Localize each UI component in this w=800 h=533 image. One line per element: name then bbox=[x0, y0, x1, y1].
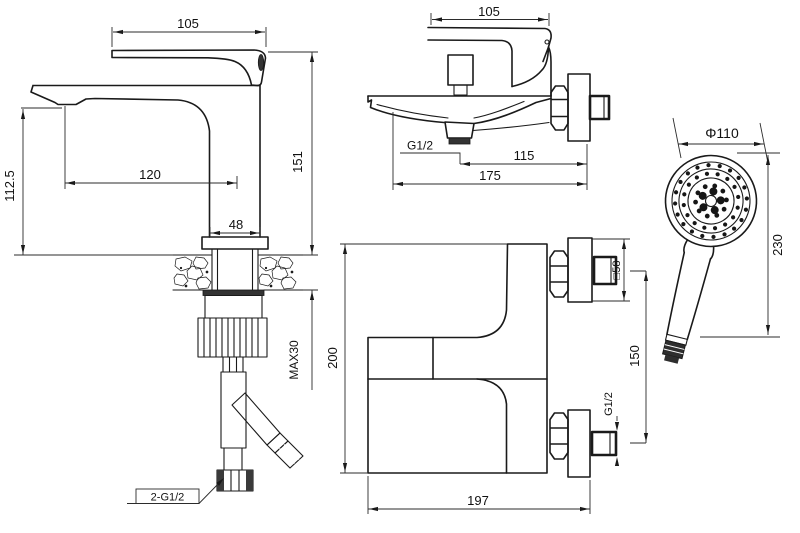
bath-handle bbox=[428, 28, 551, 62]
arrow bbox=[211, 231, 220, 235]
shower-neck bbox=[683, 240, 715, 260]
shower-face-rim bbox=[664, 154, 759, 249]
arrow bbox=[394, 182, 403, 186]
hose-2-nut bbox=[275, 441, 303, 468]
arrow bbox=[21, 110, 25, 119]
dim-front-height: 200 bbox=[325, 347, 340, 369]
bath-body-neck bbox=[512, 47, 549, 87]
dim-front-width: 197 bbox=[467, 493, 489, 508]
arrow bbox=[310, 245, 314, 254]
arrow bbox=[538, 17, 547, 21]
basin-locknut bbox=[198, 318, 267, 357]
arrow bbox=[754, 142, 763, 146]
arrow bbox=[343, 245, 347, 254]
bath-mixer-front-view: 200 □58 150 G1/2 197 bbox=[325, 238, 648, 514]
dim-shower-head-diameter: Φ110 bbox=[705, 125, 739, 141]
front-top-hex-nut bbox=[550, 251, 568, 297]
arrow bbox=[369, 507, 378, 511]
dim-front-inlet-spacing: 150 bbox=[627, 345, 642, 367]
arrow bbox=[622, 291, 626, 300]
diverter-knob bbox=[448, 55, 473, 85]
basin-base-flange bbox=[202, 237, 268, 249]
shower-ring-1 bbox=[672, 162, 750, 240]
front-top-flange bbox=[568, 238, 592, 302]
arrow bbox=[615, 457, 619, 466]
diverter-stem bbox=[454, 85, 467, 95]
dim-lines-basin-151-max30 bbox=[268, 52, 318, 390]
arrow bbox=[114, 30, 123, 34]
dim-basin-supply-hoses: 2-G1/2 bbox=[151, 492, 185, 504]
front-bottom-hex-nut bbox=[550, 413, 568, 459]
countertop-lines bbox=[173, 255, 303, 290]
arrow bbox=[250, 231, 259, 235]
arrow bbox=[343, 463, 347, 472]
arrow bbox=[577, 182, 586, 186]
arrow bbox=[679, 142, 688, 146]
countertop-hatch-right bbox=[259, 257, 296, 289]
hose-1-nut-facets bbox=[231, 470, 239, 491]
dim-lines-shower-230 bbox=[700, 153, 780, 337]
technical-drawing-page: 105 151 MAX30 112.5 120 48 2-G1/2 bbox=[0, 0, 800, 533]
arrow bbox=[21, 245, 25, 254]
arrow bbox=[433, 17, 442, 21]
bath-aerator bbox=[445, 122, 474, 138]
arrow bbox=[644, 433, 648, 442]
hand-shower bbox=[627, 146, 766, 373]
basin-hose-hex-facets bbox=[230, 357, 237, 372]
arrow bbox=[766, 325, 770, 334]
arrow bbox=[66, 181, 75, 185]
basin-handle-endcap bbox=[258, 55, 263, 71]
faucet-dimension-drawing: 105 151 MAX30 112.5 120 48 2-G1/2 bbox=[0, 0, 800, 533]
front-body-outline bbox=[368, 244, 547, 473]
arrow bbox=[310, 53, 314, 62]
dim-basin-body-width: 48 bbox=[229, 217, 243, 232]
dim-side-total-depth: 175 bbox=[479, 168, 501, 183]
arrow bbox=[622, 240, 626, 249]
supply-hose-1 bbox=[221, 372, 246, 448]
hose-1-nut-shade-r bbox=[246, 470, 253, 491]
basin-hose-hex bbox=[223, 357, 243, 372]
arrow bbox=[461, 162, 470, 166]
dim-side-handle-width: 105 bbox=[478, 4, 500, 19]
arrow bbox=[615, 422, 619, 431]
dim-basin-max-deck: MAX30 bbox=[287, 340, 301, 380]
dim-basin-spout-reach: 120 bbox=[139, 167, 161, 182]
shower-handle bbox=[664, 253, 710, 341]
dim-front-inlet-thread: G1/2 bbox=[603, 392, 615, 416]
bath-body-right bbox=[549, 47, 552, 96]
dim-lines-front-200 bbox=[340, 244, 507, 473]
basin-washer bbox=[203, 290, 264, 296]
dim-front-flange-size: □58 bbox=[611, 261, 623, 280]
bath-mixer-side-view: 105 G1/2 115 175 bbox=[368, 4, 609, 190]
wall-hex-nut bbox=[551, 86, 568, 130]
dim-side-spout-thread: G1/2 bbox=[407, 139, 433, 153]
arrow bbox=[644, 272, 648, 281]
dim-basin-handle-width: 105 bbox=[177, 16, 199, 31]
hose-1-fitting bbox=[224, 448, 242, 470]
arrow bbox=[227, 181, 236, 185]
front-lower-fillet bbox=[477, 379, 507, 473]
basin-handle bbox=[112, 50, 266, 86]
basin-mixer-side-view: 105 151 MAX30 112.5 120 48 2-G1/2 bbox=[2, 16, 318, 504]
spout-thread-leader bbox=[400, 153, 460, 164]
dim-shower-length: 230 bbox=[770, 234, 785, 256]
arrow bbox=[577, 162, 586, 166]
bath-aerator-tip bbox=[449, 138, 470, 144]
bath-spout-underside bbox=[368, 96, 444, 123]
basin-shank bbox=[212, 249, 258, 290]
basin-collar bbox=[205, 296, 262, 319]
shower-ring-2 bbox=[683, 173, 739, 229]
bath-spout-underside-right bbox=[474, 99, 551, 124]
wall-thread bbox=[590, 96, 609, 119]
supply-hose-2 bbox=[232, 393, 280, 445]
dim-basin-spout-height: 112.5 bbox=[2, 170, 17, 202]
front-bottom-flange bbox=[568, 410, 590, 477]
arrow bbox=[310, 291, 314, 300]
handle-screw bbox=[545, 40, 549, 44]
basin-locknut-knurl bbox=[204, 318, 258, 357]
front-bottom-thread bbox=[592, 432, 616, 455]
bath-handle-bottom bbox=[428, 40, 512, 87]
hand-shower-view: Φ110 230 bbox=[627, 118, 785, 373]
arrow bbox=[255, 30, 264, 34]
dim-side-wall-distance: 115 bbox=[514, 148, 535, 163]
countertop-hatch-left bbox=[174, 257, 211, 289]
arrow bbox=[580, 507, 589, 511]
wall-flange bbox=[568, 74, 590, 141]
dim-basin-height: 151 bbox=[290, 151, 305, 173]
